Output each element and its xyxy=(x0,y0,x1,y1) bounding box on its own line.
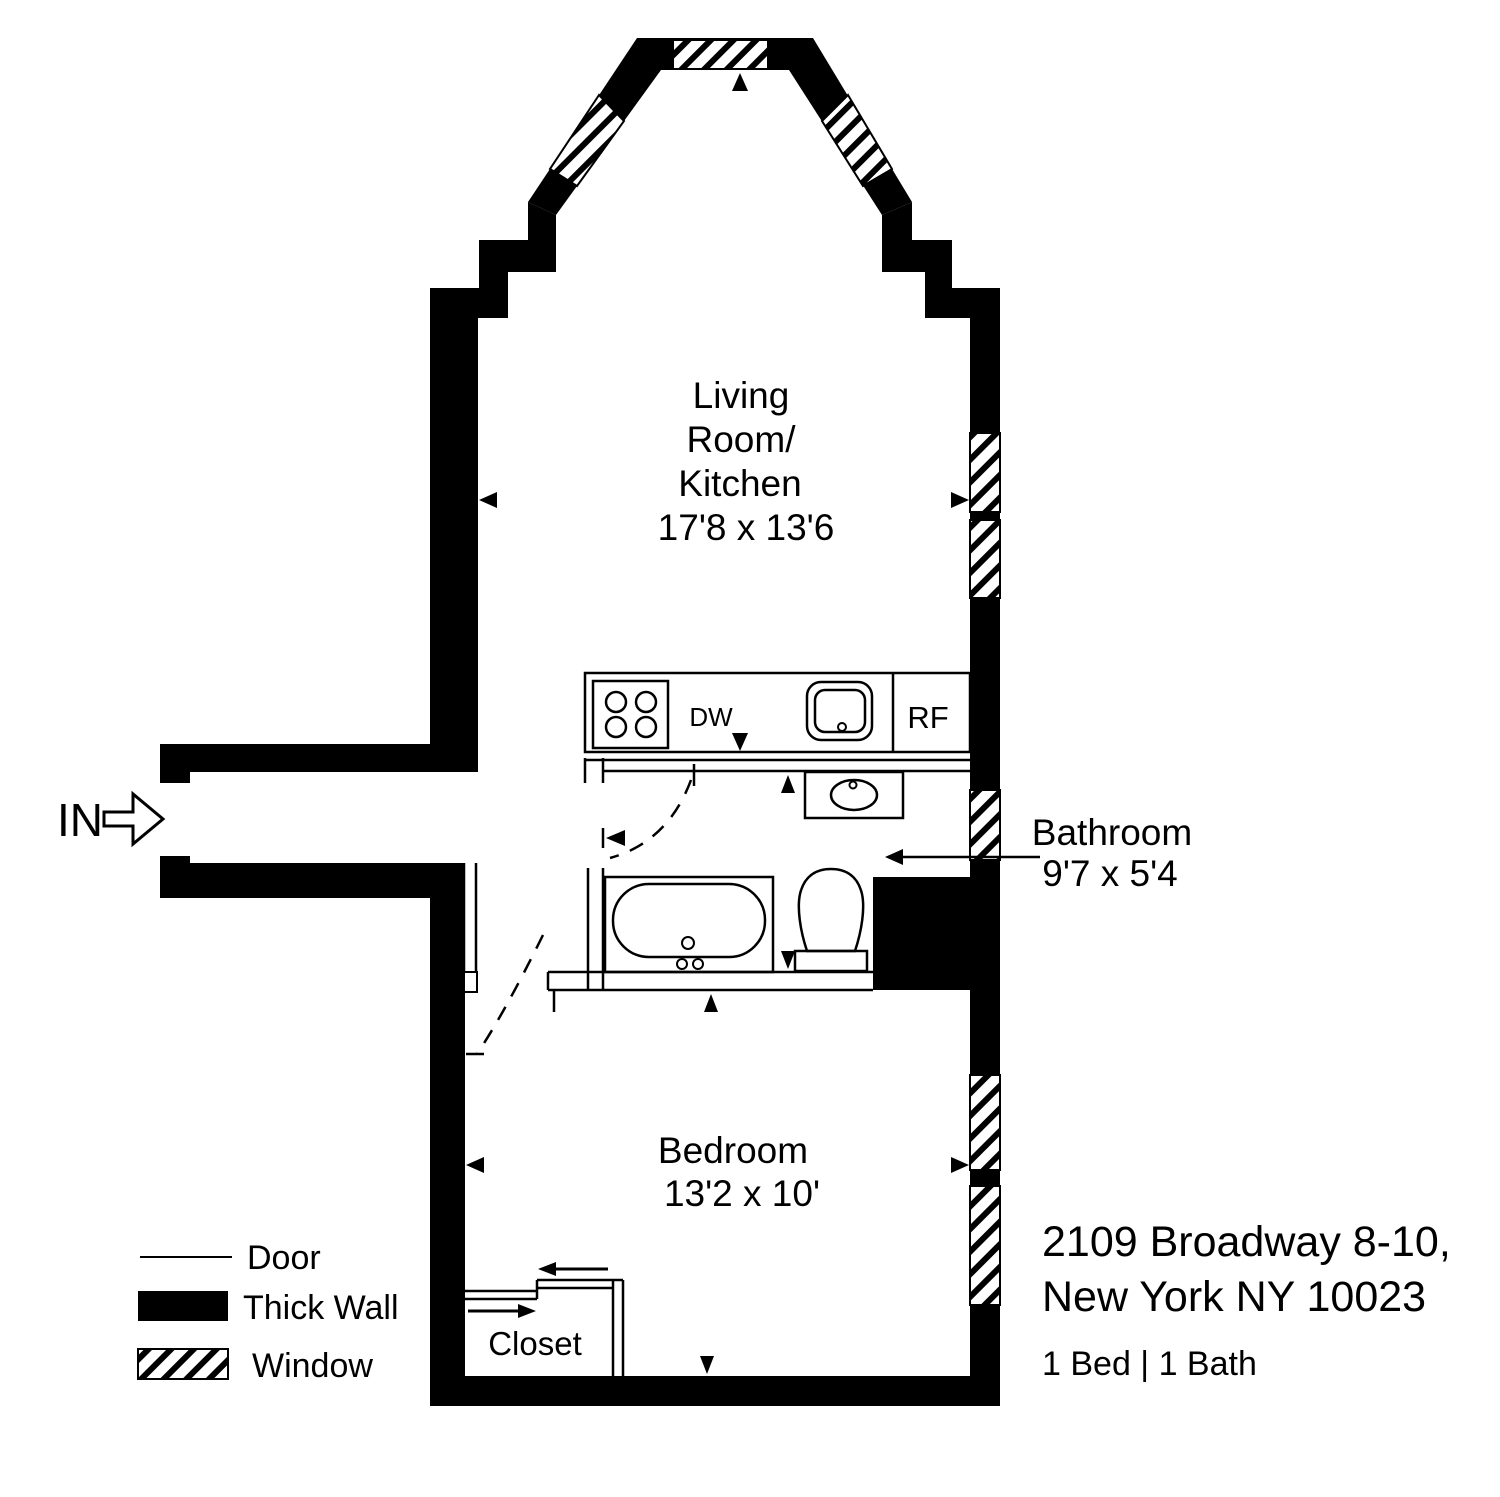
wall-right xyxy=(970,318,1000,433)
living-room-label-1: Living xyxy=(693,375,790,416)
window-bathroom xyxy=(970,790,1000,860)
window-top-peak xyxy=(673,40,768,69)
wall-right xyxy=(970,512,1000,520)
wall-right xyxy=(970,860,1000,1075)
entrance-label: IN xyxy=(57,794,103,846)
bathroom-dims: 9'7 x 5'4 xyxy=(1042,853,1178,894)
wall-bottom xyxy=(430,1376,1000,1406)
living-room-label-3: Kitchen xyxy=(678,463,801,504)
closet-label: Closet xyxy=(488,1325,582,1362)
legend-thick-wall-label: Thick Wall xyxy=(243,1289,399,1327)
wall-west-lower xyxy=(430,898,465,1406)
dishwasher-label: DW xyxy=(689,702,733,732)
bedroom-dims: 13'2 x 10' xyxy=(664,1173,820,1214)
window-living-1 xyxy=(970,433,1000,512)
address-line-1: 2109 Broadway 8-10, xyxy=(1042,1218,1451,1266)
window-bedroom-1 xyxy=(970,1075,1000,1170)
refrigerator-label: RF xyxy=(907,700,948,735)
legend-thick-wall-symbol xyxy=(138,1291,228,1321)
floor-plan-page: IN Living Room/ Kitchen 17'8 x 13'6 DW R… xyxy=(0,0,1500,1497)
bedroom-label: Bedroom xyxy=(658,1130,808,1171)
legend-window-label: Window xyxy=(252,1347,373,1385)
window-living-2 xyxy=(970,520,1000,598)
wall-right xyxy=(970,1170,1000,1186)
wall-bathroom-chase xyxy=(873,877,970,990)
address-line-2: New York NY 10023 xyxy=(1042,1273,1426,1321)
wall-right xyxy=(970,598,1000,790)
floor-plan-drawing: IN Living Room/ Kitchen 17'8 x 13'6 DW R… xyxy=(0,0,1500,1497)
bathroom-label: Bathroom xyxy=(1032,812,1192,853)
living-room-dims: 17'8 x 13'6 xyxy=(658,507,835,548)
legend-door-label: Door xyxy=(247,1239,321,1277)
beds-baths-label: 1 Bed | 1 Bath xyxy=(1042,1345,1257,1383)
living-room-label-2: Room/ xyxy=(687,419,797,460)
legend-window-symbol xyxy=(138,1349,228,1379)
window-bedroom-2 xyxy=(970,1186,1000,1305)
